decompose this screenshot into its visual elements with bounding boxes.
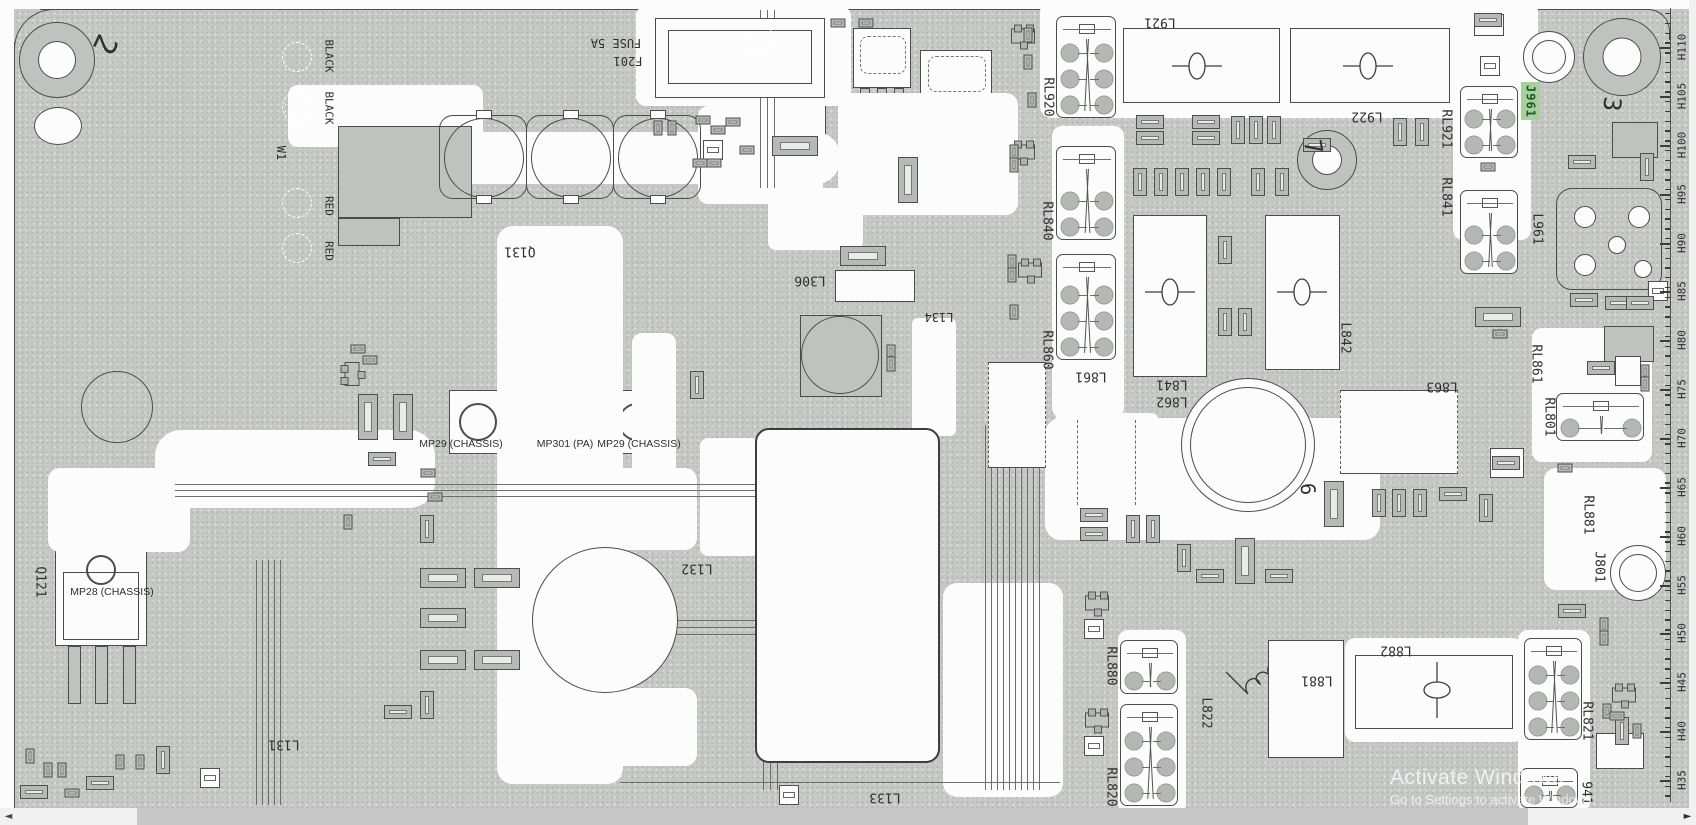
silk-label: L862 — [1156, 395, 1187, 408]
smd-pad — [1640, 153, 1654, 181]
wire-hole-marker — [282, 233, 312, 263]
trace-line — [268, 560, 269, 805]
relay-pin-st — [1153, 793, 1161, 794]
relay-pad — [1529, 692, 1548, 711]
silk-label: RL801 — [1543, 397, 1556, 436]
inner-ring — [1190, 387, 1306, 503]
ruler-minor-tick — [1665, 541, 1670, 542]
ruler-minor-tick — [1665, 346, 1670, 347]
electrolytic-capacitor — [439, 115, 527, 199]
capacitor-body — [531, 118, 611, 198]
relay-armature-line — [1150, 663, 1152, 687]
smd-pad — [840, 246, 886, 266]
smd-pad — [668, 121, 677, 136]
smd-pad — [1558, 464, 1573, 473]
ruler-axis — [1670, 8, 1671, 802]
smd-pad — [1010, 305, 1019, 320]
ruler-minor-tick — [1665, 522, 1670, 523]
ruler-minor-tick — [1665, 209, 1670, 210]
smd-pad — [1146, 515, 1160, 543]
silk-label: L306 — [794, 274, 825, 287]
relay-pad — [1061, 192, 1080, 211]
trace-line — [985, 425, 986, 790]
silk-label: RL821 — [1581, 701, 1594, 740]
smd-pad — [1177, 544, 1191, 572]
wire-hole-marker — [282, 92, 312, 122]
smd-pad — [1267, 116, 1281, 144]
ruler-minor-tick — [1665, 629, 1670, 630]
smd-pad — [421, 469, 436, 478]
relay-pad — [1061, 70, 1080, 89]
smd-pad — [1136, 131, 1164, 145]
smd-pad — [1218, 236, 1232, 264]
trace-line — [262, 560, 263, 805]
ruler-minor-tick — [1665, 91, 1670, 92]
copper-region — [838, 93, 1018, 215]
smd-pad — [474, 568, 520, 588]
ruler-minor-tick — [1665, 590, 1670, 591]
relay-pad — [1061, 218, 1080, 237]
silk-label: RL881 — [1582, 495, 1595, 534]
silk-label: RL860 — [1041, 330, 1054, 369]
trace-line — [280, 560, 281, 805]
relay-diode-lead — [1127, 717, 1173, 718]
trace-line — [991, 425, 992, 790]
ruler-minor-tick — [1665, 23, 1670, 24]
smd-diode — [703, 140, 723, 160]
ruler-minor-tick — [1665, 140, 1670, 141]
silk-label: L961 — [1531, 213, 1544, 244]
silk-label: J801 — [1593, 551, 1606, 582]
ruler-minor-tick — [1665, 678, 1670, 679]
ruler-minor-tick — [1665, 619, 1670, 620]
silk-label: MP29 (CHASSIS) — [419, 439, 502, 450]
ruler-minor-tick — [1665, 81, 1670, 82]
ruler-minor-tick — [1665, 795, 1670, 796]
sot23-transistor — [1018, 263, 1042, 278]
pcb-viewer-window: 2BLACKBLACKW1REDREDFUSE 5AF201Q131L306L1… — [0, 0, 1696, 825]
silk-label: W1 — [275, 146, 287, 160]
smd-pad — [1600, 631, 1609, 646]
ruler-label: H35 — [1676, 770, 1689, 790]
ruler-major-tick — [1660, 145, 1670, 147]
ruler-minor-tick — [1665, 52, 1670, 53]
copper-region — [700, 438, 760, 556]
ruler-minor-tick — [1665, 600, 1670, 601]
ruler-minor-tick — [1665, 121, 1670, 122]
smd-pad — [1008, 268, 1017, 283]
ruler-minor-tick — [1665, 72, 1670, 73]
ruler-minor-tick — [1665, 776, 1670, 777]
trace-line — [1015, 425, 1016, 790]
vertical-scrollbar[interactable] — [1689, 0, 1696, 808]
relay-pin-st — [1142, 793, 1150, 794]
ruler-minor-tick — [1665, 169, 1670, 170]
smd-pad — [707, 159, 722, 168]
relay-pin-st — [1090, 53, 1099, 54]
board-edge-left — [14, 42, 15, 808]
ruler-minor-tick — [1665, 658, 1670, 659]
inductor-symbol — [1291, 277, 1313, 307]
ruler-minor-tick — [1665, 649, 1670, 650]
ruler-minor-tick — [1665, 424, 1670, 425]
smd-pad — [1192, 131, 1220, 145]
silk-label: FUSE 5A — [591, 37, 642, 49]
sot23-transistor — [1612, 688, 1636, 703]
ruler-minor-tick — [1665, 707, 1670, 708]
capacitor-body — [444, 118, 524, 198]
copper-region — [768, 188, 863, 250]
ruler-minor-tick — [1665, 150, 1670, 151]
wire-hole-marker — [282, 42, 312, 72]
ruler-major-tick — [1660, 96, 1670, 98]
relay-pad — [1061, 96, 1080, 115]
ruler-minor-tick — [1665, 199, 1670, 200]
smd-pad — [1413, 489, 1427, 517]
smd-pad — [1587, 361, 1615, 375]
smd-diode — [1084, 619, 1104, 639]
smd-pad — [693, 159, 708, 168]
ruler-minor-tick — [1665, 668, 1670, 669]
ruler-minor-tick — [1665, 698, 1670, 699]
ruler-minor-tick — [1665, 639, 1670, 640]
ruler-label: H100 — [1676, 132, 1689, 159]
ruler-label: H65 — [1676, 477, 1689, 497]
capacitor-tab — [563, 110, 579, 119]
relay-pin-st — [1090, 227, 1099, 228]
relay-pin-st — [1090, 321, 1099, 322]
relay-pad — [1529, 666, 1548, 685]
ruler-minor-tick — [1665, 267, 1670, 268]
smd-pad — [1568, 155, 1596, 169]
smd-diode — [200, 768, 220, 788]
relay-diode-lead — [1063, 29, 1111, 30]
capacitor-tab — [563, 195, 579, 204]
silk-label: MP301 (PA) — [537, 439, 593, 450]
copper-region — [573, 468, 697, 550]
smd-diode — [1480, 56, 1500, 76]
relay-pin-st — [1557, 727, 1565, 728]
ruler-minor-tick — [1665, 277, 1670, 278]
q121-leg — [68, 646, 81, 704]
mounting-hole — [1583, 18, 1661, 96]
smd-pad — [1133, 168, 1147, 196]
smd-pad — [1217, 168, 1231, 196]
smd-pad — [696, 116, 711, 125]
smd-pad — [740, 146, 755, 155]
smd-pad — [420, 650, 466, 670]
silk-label: MP28 (CHASSIS) — [70, 587, 153, 598]
ruler-label: H95 — [1676, 184, 1689, 204]
horizontal-scrollbar-thumb[interactable] — [137, 808, 1528, 825]
relay-pad — [1125, 732, 1144, 751]
ruler-minor-tick — [1665, 287, 1670, 288]
ruler-major-tick — [1660, 194, 1670, 196]
ruler-minor-tick — [1665, 297, 1670, 298]
smd-pad — [1218, 308, 1232, 336]
relay-footprint — [1556, 393, 1644, 441]
relay-diode-lead — [1063, 159, 1111, 160]
ruler-minor-tick — [1665, 355, 1670, 356]
smd-pad — [1154, 168, 1168, 196]
silk-label: L922 — [1351, 110, 1382, 123]
silk-label: RL920 — [1042, 77, 1055, 116]
copper-region — [1055, 413, 1159, 505]
silk-label: L133 — [869, 791, 900, 804]
trace-line — [1027, 425, 1028, 790]
smd-pad — [1570, 293, 1598, 307]
activate-windows-watermark-line2: Go to Settings to activate Windows. — [1390, 792, 1595, 807]
horizontal-scrollbar[interactable]: ◄ ► — [0, 808, 1696, 825]
smd-pad — [420, 515, 434, 543]
silk-label: L882 — [1380, 644, 1411, 657]
smd-pad — [1474, 13, 1502, 27]
smd-diode — [1084, 736, 1104, 756]
silk-label: 3 — [1599, 96, 1624, 112]
circular-footprint — [1610, 545, 1666, 601]
trace-line — [1009, 425, 1010, 790]
silk-label: RL861 — [1530, 344, 1543, 383]
component-outline — [835, 270, 915, 302]
smd-pad — [1481, 163, 1496, 172]
ruler-minor-tick — [1665, 385, 1670, 386]
ruler-minor-tick — [1665, 228, 1670, 229]
smd-pad — [393, 394, 413, 440]
capacitor-tab — [650, 195, 666, 204]
relay-footprint — [1120, 640, 1178, 694]
smd-pad — [1492, 456, 1520, 470]
smd-pad — [772, 136, 818, 156]
silk-label: L134 — [925, 311, 954, 323]
scroll-right-arrow-icon[interactable]: ► — [1679, 808, 1696, 825]
component-outline — [1268, 640, 1344, 758]
ruler-label: H70 — [1676, 428, 1689, 448]
silk-label: RL840 — [1041, 201, 1054, 240]
relay-pad — [1465, 136, 1484, 155]
ruler-minor-tick — [1665, 258, 1670, 259]
relay-pad — [1465, 226, 1484, 245]
smd-pad — [711, 126, 726, 135]
activate-windows-watermark: Activate Windows — [1390, 766, 1564, 790]
dashed-line — [1135, 420, 1136, 505]
circular-footprint — [1523, 31, 1575, 83]
ruler-label: H85 — [1676, 281, 1689, 301]
component-outline — [1340, 390, 1458, 474]
q121-leg — [123, 646, 136, 704]
silk-label: L921 — [1144, 16, 1175, 29]
inductor-symbol — [1357, 51, 1379, 81]
inductor-symbol — [1186, 51, 1208, 81]
ruler-minor-tick — [1665, 111, 1670, 112]
relay-pin-st — [1493, 119, 1501, 120]
ruler-minor-tick — [1665, 727, 1670, 728]
relay-pad — [1529, 718, 1548, 737]
ruler-minor-tick — [1665, 189, 1670, 190]
ruler-minor-tick — [1665, 551, 1670, 552]
ruler-minor-tick — [1665, 512, 1670, 513]
wire-hole-marker — [743, 22, 773, 52]
ruler-minor-tick — [1665, 179, 1670, 180]
pcb-layout-image: 2BLACKBLACKW1REDREDFUSE 5AF201Q131L306L1… — [0, 0, 1696, 808]
ruler-minor-tick — [1665, 414, 1670, 415]
inner-ring — [1532, 40, 1566, 74]
silk-label: RL841 — [1440, 177, 1453, 216]
smd-pad — [1475, 307, 1521, 327]
relay-pin-st — [1142, 681, 1150, 682]
smd-pad — [1415, 118, 1429, 146]
smd-pad — [831, 19, 846, 28]
smd-pad — [351, 345, 366, 354]
smd-pad — [690, 371, 704, 399]
ruler-minor-tick — [1665, 463, 1670, 464]
smd-pad — [363, 356, 378, 365]
capacitor-tab — [476, 110, 492, 119]
pa-screw-hole-left — [459, 403, 497, 441]
smd-pad — [898, 157, 918, 203]
ruler-label: H75 — [1676, 379, 1689, 399]
relay-pin-st — [1078, 53, 1087, 54]
ruler-major-tick — [1660, 438, 1670, 440]
ruler-minor-tick — [1665, 365, 1670, 366]
wire-hole-marker — [282, 188, 312, 218]
relay-pin-st — [1090, 347, 1099, 348]
hole-center — [38, 41, 76, 79]
ruler-minor-tick — [1665, 717, 1670, 718]
mounting-slot-oval — [34, 107, 82, 145]
hole-center — [1603, 38, 1642, 77]
silk-label: RL820 — [1105, 767, 1118, 806]
smd-pad — [1558, 604, 1586, 618]
smd-pad — [1235, 538, 1255, 584]
smd-pad — [1641, 377, 1650, 392]
circular-footprint — [1181, 378, 1315, 512]
smd-pad — [1615, 717, 1629, 745]
relay-pad — [1125, 784, 1144, 803]
silk-label: L841 — [1156, 378, 1187, 391]
inner-ring — [1619, 554, 1657, 592]
relay-footprint — [1460, 86, 1518, 158]
relay-pin-st — [1153, 741, 1161, 742]
component-outline — [1615, 356, 1641, 386]
sot23-transistor — [1085, 713, 1109, 728]
silk-label: L881 — [1301, 674, 1332, 687]
trace-line — [1039, 425, 1040, 790]
relay-pin-st — [1493, 235, 1501, 236]
smd-pad — [26, 749, 35, 764]
smd-pad — [344, 515, 353, 530]
ruler-major-tick — [1660, 243, 1670, 245]
smd-pad — [1265, 569, 1293, 583]
trimmer-footprint — [1556, 188, 1662, 290]
ruler-minor-tick — [1665, 218, 1670, 219]
smd-pad — [20, 785, 48, 799]
ruler-minor-tick — [1665, 531, 1670, 532]
smd-pad — [1028, 93, 1037, 108]
mounting-hole — [19, 22, 95, 98]
circular-footprint — [801, 316, 879, 394]
ruler-minor-tick — [1665, 375, 1670, 376]
ruler-minor-tick — [1665, 473, 1670, 474]
ruler-minor-tick — [1665, 404, 1670, 405]
smd-pad — [1372, 489, 1386, 517]
ruler-minor-tick — [1665, 434, 1670, 435]
search-highlight-j961: J961 — [1521, 82, 1540, 120]
smd-pad — [44, 763, 53, 778]
trace-line — [620, 782, 1060, 783]
silk-label: F201 — [614, 55, 643, 67]
silk-label: Q121 — [34, 566, 47, 597]
inductor-symbol — [1159, 277, 1181, 307]
ruler-label: H60 — [1676, 526, 1689, 546]
smd-pad — [1024, 55, 1033, 70]
scroll-left-arrow-icon[interactable]: ◄ — [0, 808, 17, 825]
relay-pin-st — [1578, 428, 1601, 429]
ruler-label: H80 — [1676, 330, 1689, 350]
relay-pad — [1061, 286, 1080, 305]
capacitor-tab — [476, 195, 492, 204]
smd-pad — [1175, 168, 1189, 196]
relay-pin-st — [1557, 701, 1565, 702]
ruler-minor-tick — [1665, 688, 1670, 689]
relay-footprint — [1460, 190, 1518, 274]
relay-footprint — [1056, 254, 1116, 360]
silk-label: RED — [324, 196, 335, 216]
relay-pin-st — [1090, 295, 1099, 296]
smd-diode — [779, 785, 799, 805]
smd-pad — [136, 755, 145, 770]
ruler-minor-tick — [1665, 306, 1670, 307]
relay-pad — [1125, 672, 1144, 691]
ruler-minor-tick — [1665, 42, 1670, 43]
relay-armature-line — [1601, 416, 1603, 434]
ruler-major-tick — [1660, 389, 1670, 391]
ruler-minor-tick — [1665, 336, 1670, 337]
smd-pad — [58, 763, 67, 778]
ruler-minor-tick — [1665, 502, 1670, 503]
smd-pad — [1010, 158, 1019, 173]
ruler-major-tick — [1660, 47, 1670, 49]
ruler-major-tick — [1660, 780, 1670, 782]
ruler-minor-tick — [1665, 248, 1670, 249]
ruler-minor-tick — [1665, 394, 1670, 395]
smd-pad — [1080, 508, 1108, 522]
ruler-minor-tick — [1665, 443, 1670, 444]
copper-region — [912, 318, 956, 436]
circular-footprint — [81, 371, 153, 443]
ruler-minor-tick — [1665, 580, 1670, 581]
ruler-label: H110 — [1676, 34, 1689, 61]
smd-pad — [420, 691, 434, 719]
trace-line — [997, 425, 998, 790]
smd-pad — [1231, 116, 1245, 144]
trace-line — [1021, 425, 1022, 790]
relay-pin-st — [1493, 261, 1501, 262]
smd-pad — [368, 452, 396, 466]
ruler-minor-tick — [1665, 492, 1670, 493]
dashed-line — [1077, 420, 1078, 505]
ruler-major-tick — [1660, 340, 1670, 342]
silk-label: BLACK — [324, 39, 335, 72]
relay-pin-st — [1546, 727, 1554, 728]
relay-footprint — [1056, 146, 1116, 240]
ruler-major-tick — [1660, 487, 1670, 489]
relay-diode-lead — [1531, 651, 1577, 652]
copper-region — [563, 688, 697, 766]
relay-pad — [1465, 252, 1484, 271]
relay-footprint — [1056, 16, 1116, 118]
smd-pad — [1493, 330, 1508, 339]
silk-label: RL921 — [1440, 109, 1453, 148]
